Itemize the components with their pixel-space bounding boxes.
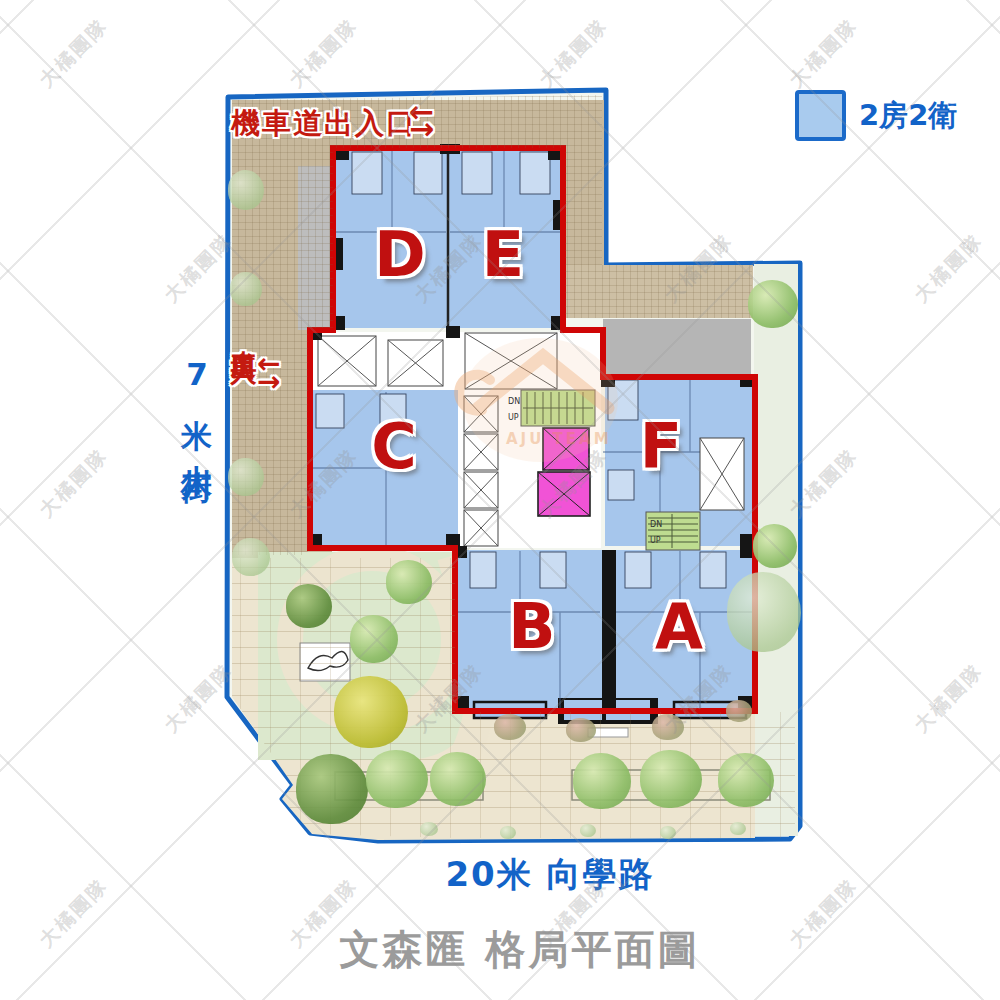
garden-sculpture: [300, 643, 350, 681]
svg-text:UP: UP: [508, 413, 519, 422]
garden: [258, 552, 481, 760]
unit-label-E: E: [482, 218, 524, 291]
svg-text:DN: DN: [650, 520, 662, 529]
svg-text:UP: UP: [650, 536, 661, 545]
car-entrance-label: 車道出入口: [227, 330, 262, 340]
unit-label-B: B: [508, 590, 555, 663]
team-logo-text: AJU TEAM: [506, 430, 612, 448]
legend: 2房2衛: [795, 90, 957, 141]
arrow-right-icon: →: [409, 120, 434, 137]
moto-entrance-label: 機車道出入口: [231, 104, 417, 144]
legend-swatch: [795, 90, 846, 141]
car-entrance-arrows: ← →: [257, 355, 280, 391]
street-label-bottom: 20米 向學路: [400, 852, 700, 898]
legend-label: 2房2衛: [859, 96, 957, 136]
svg-text:DN: DN: [508, 397, 520, 406]
floor-plan-page: AJU TEAM DN UP DN UP 機車道出入口 ← →: [0, 0, 1000, 1000]
unit-label-D: D: [374, 218, 425, 291]
arrow-right-icon: →: [257, 373, 280, 391]
site-plan-drawing: AJU TEAM DN UP DN UP: [0, 0, 1000, 1000]
unit-label-F: F: [640, 409, 682, 482]
street-label-left: 7米 大川街: [176, 356, 218, 452]
unit-label-A: A: [655, 590, 703, 663]
unit-label-C: C: [371, 410, 417, 483]
moto-entrance-arrows: ← →: [409, 103, 434, 137]
landscape-strip-right: [754, 264, 798, 836]
page-title: 文森匯 格局平面圖: [280, 922, 760, 977]
